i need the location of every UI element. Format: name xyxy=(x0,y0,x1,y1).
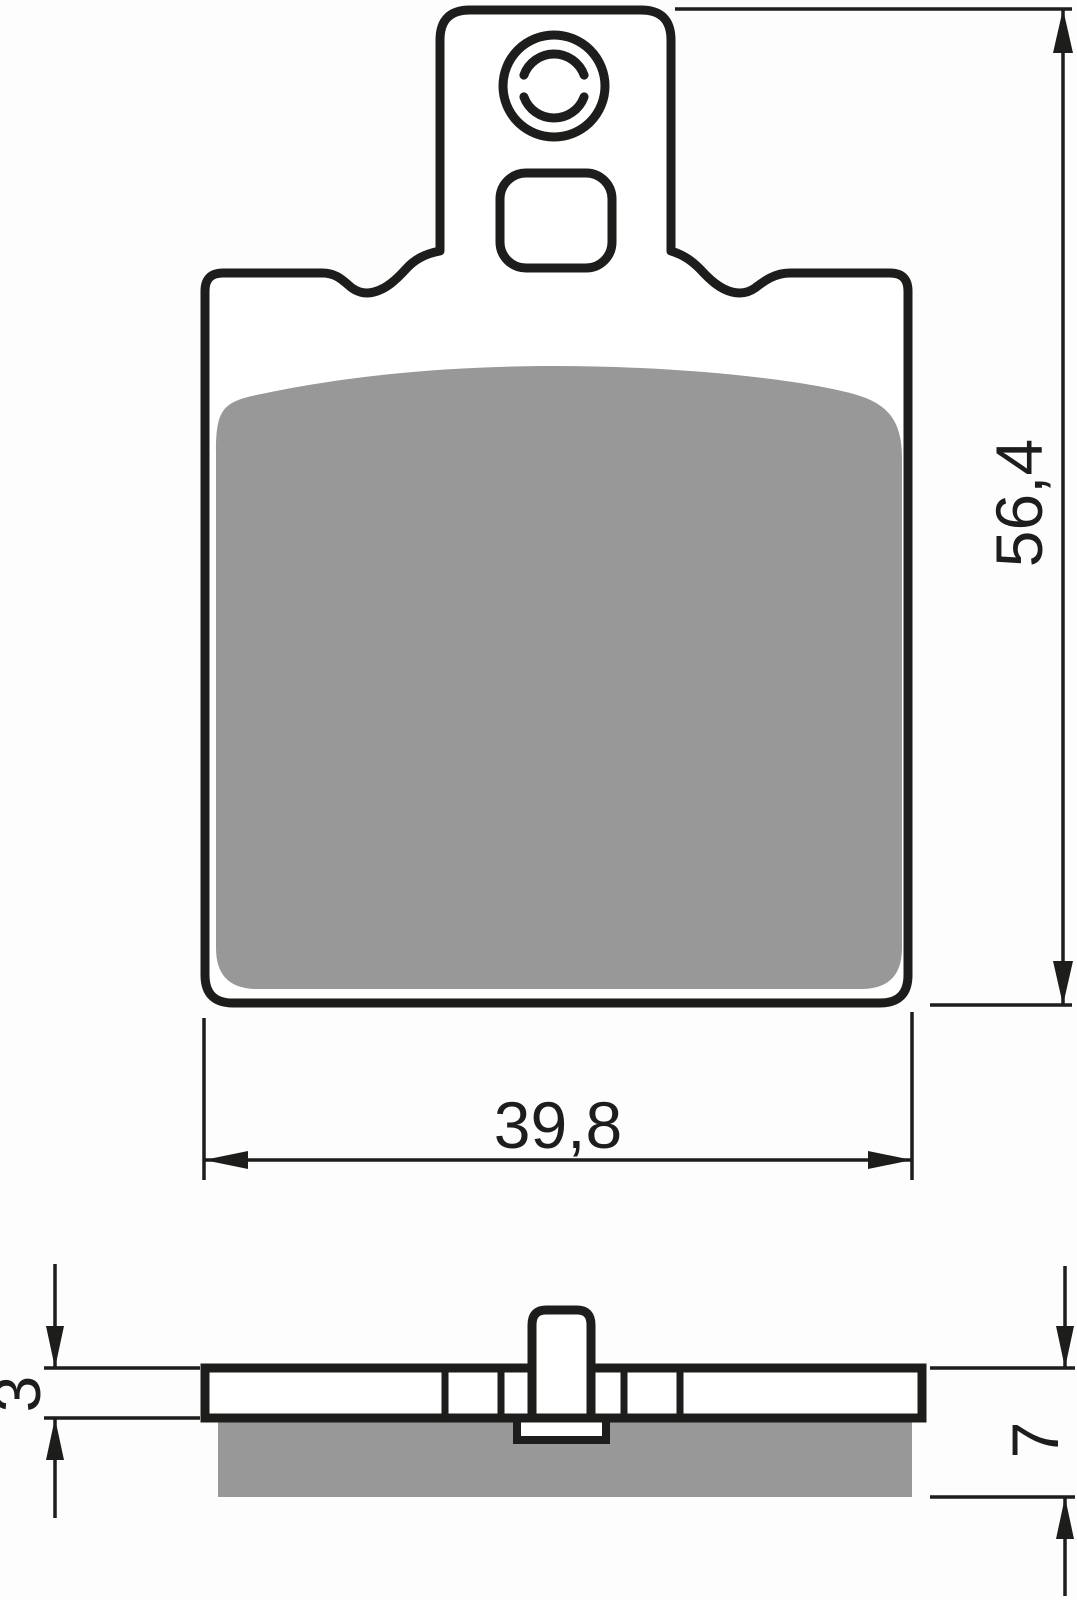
round-hole xyxy=(503,35,605,137)
dimension-arrowhead-down-icon xyxy=(1056,1326,1074,1368)
dimension-arrowhead-down-icon xyxy=(1053,961,1073,1005)
dimension-width-label: 39,8 xyxy=(494,1088,622,1162)
dimension-arrowhead-left-icon xyxy=(204,1151,248,1169)
dimension-arrowhead-down-icon xyxy=(46,1326,64,1368)
stud xyxy=(532,1310,591,1418)
dimension-plate-thickness-label: 3 xyxy=(0,1376,54,1413)
dimension-plate-thickness: 3 xyxy=(0,1264,200,1518)
side-view xyxy=(205,1310,922,1497)
dimension-total-thickness-label: 7 xyxy=(998,1422,1072,1459)
dimension-arrowhead-right-icon xyxy=(868,1151,912,1169)
dimension-width: 39,8 xyxy=(204,1012,912,1180)
friction-material-front xyxy=(216,366,902,989)
dimension-arrowhead-up-icon xyxy=(1056,1497,1074,1539)
front-view xyxy=(205,10,908,1003)
dimension-height-label: 56,4 xyxy=(982,439,1056,567)
square-hole xyxy=(500,173,612,268)
dimension-arrowhead-up-icon xyxy=(1053,9,1073,53)
brake-pad-drawing: 56,4 39,8 3 xyxy=(0,0,1077,1600)
dimension-total-thickness: 7 xyxy=(930,1266,1075,1596)
technical-drawing-canvas: 56,4 39,8 3 xyxy=(0,0,1077,1600)
dimension-arrowhead-up-icon xyxy=(46,1418,64,1460)
